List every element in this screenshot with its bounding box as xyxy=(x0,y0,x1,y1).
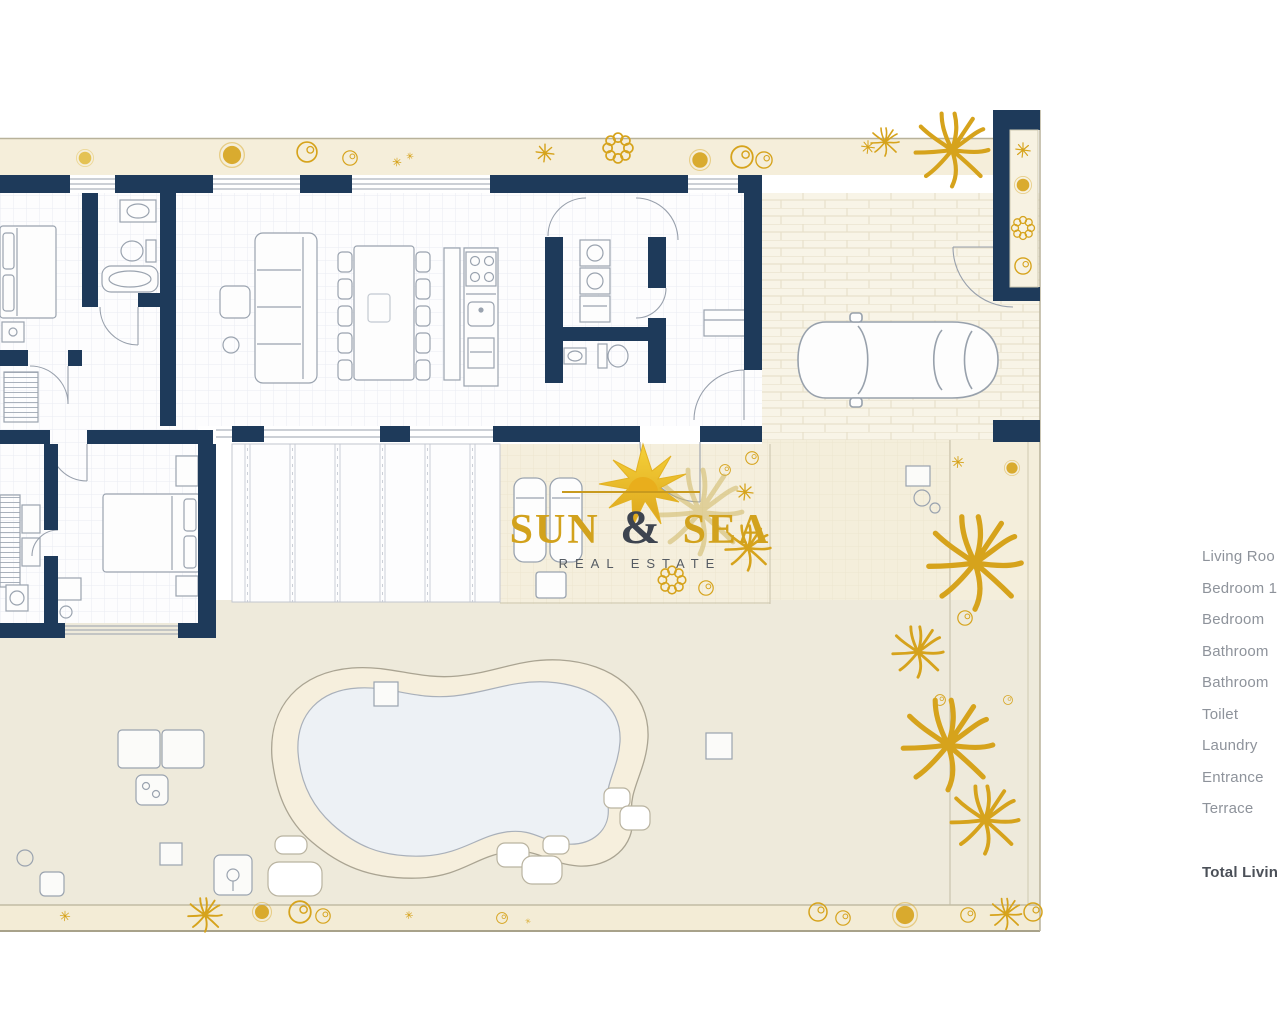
legend-item-laundry: Laundry xyxy=(1202,730,1280,762)
legend-item-bathroom-1: Bathroom xyxy=(1202,636,1280,668)
nightstand xyxy=(176,576,198,596)
legend-item-bedroom-1: Bedroom 1 xyxy=(1202,573,1280,605)
pergola-terrace xyxy=(232,444,500,602)
floor-plan: SUN & SEA REAL ESTATE xyxy=(0,0,1280,1024)
planter-wall xyxy=(993,287,1040,301)
planter-box xyxy=(906,466,930,486)
kitchen-island xyxy=(444,248,460,380)
car-mirror xyxy=(850,398,862,407)
outdoor-chair xyxy=(118,730,160,768)
planter-wall xyxy=(993,110,1040,130)
nightstand xyxy=(176,456,198,486)
sofa xyxy=(255,233,317,383)
bench xyxy=(55,578,81,600)
garden-feature xyxy=(40,872,64,896)
legend-item-toilet: Toilet xyxy=(1202,699,1280,731)
entrance-bench xyxy=(704,310,746,336)
armchair xyxy=(220,286,250,318)
kitchen-sink xyxy=(468,302,494,326)
legend-total-living: Total Livin xyxy=(1202,857,1280,889)
car xyxy=(798,313,998,407)
nightstand xyxy=(2,322,24,342)
legend-item-living-room: Living Roo xyxy=(1202,541,1280,573)
car-mirror xyxy=(850,313,862,322)
planter-box xyxy=(160,843,182,865)
bottom-flower-bed xyxy=(0,905,1040,932)
planter xyxy=(1010,130,1038,287)
legend: Living Roo Bedroom 1 Bedroom Bathroom Ba… xyxy=(1202,541,1280,888)
outdoor-table xyxy=(136,775,168,805)
planter-wall xyxy=(993,130,1010,287)
pillar xyxy=(993,420,1040,442)
outdoor-chair xyxy=(162,730,204,768)
legend-item-bathroom-2: Bathroom xyxy=(1202,667,1280,699)
kitchen xyxy=(444,248,498,386)
top-garden-strip xyxy=(0,138,993,175)
side-table xyxy=(536,572,566,598)
legend-item-terrace: Terrace xyxy=(1202,793,1280,825)
planter-box xyxy=(706,733,732,759)
legend-item-entrance: Entrance xyxy=(1202,762,1280,794)
planter-box xyxy=(374,682,398,706)
logo-tagline: REAL ESTATE xyxy=(559,556,722,571)
oven xyxy=(468,338,494,368)
logo-wordmark: SUN & SEA xyxy=(510,501,771,554)
legend-item-bedroom-2: Bedroom xyxy=(1202,604,1280,636)
laundry-appliances xyxy=(580,240,610,322)
pool-water xyxy=(298,682,620,856)
wardrobe xyxy=(4,372,38,422)
